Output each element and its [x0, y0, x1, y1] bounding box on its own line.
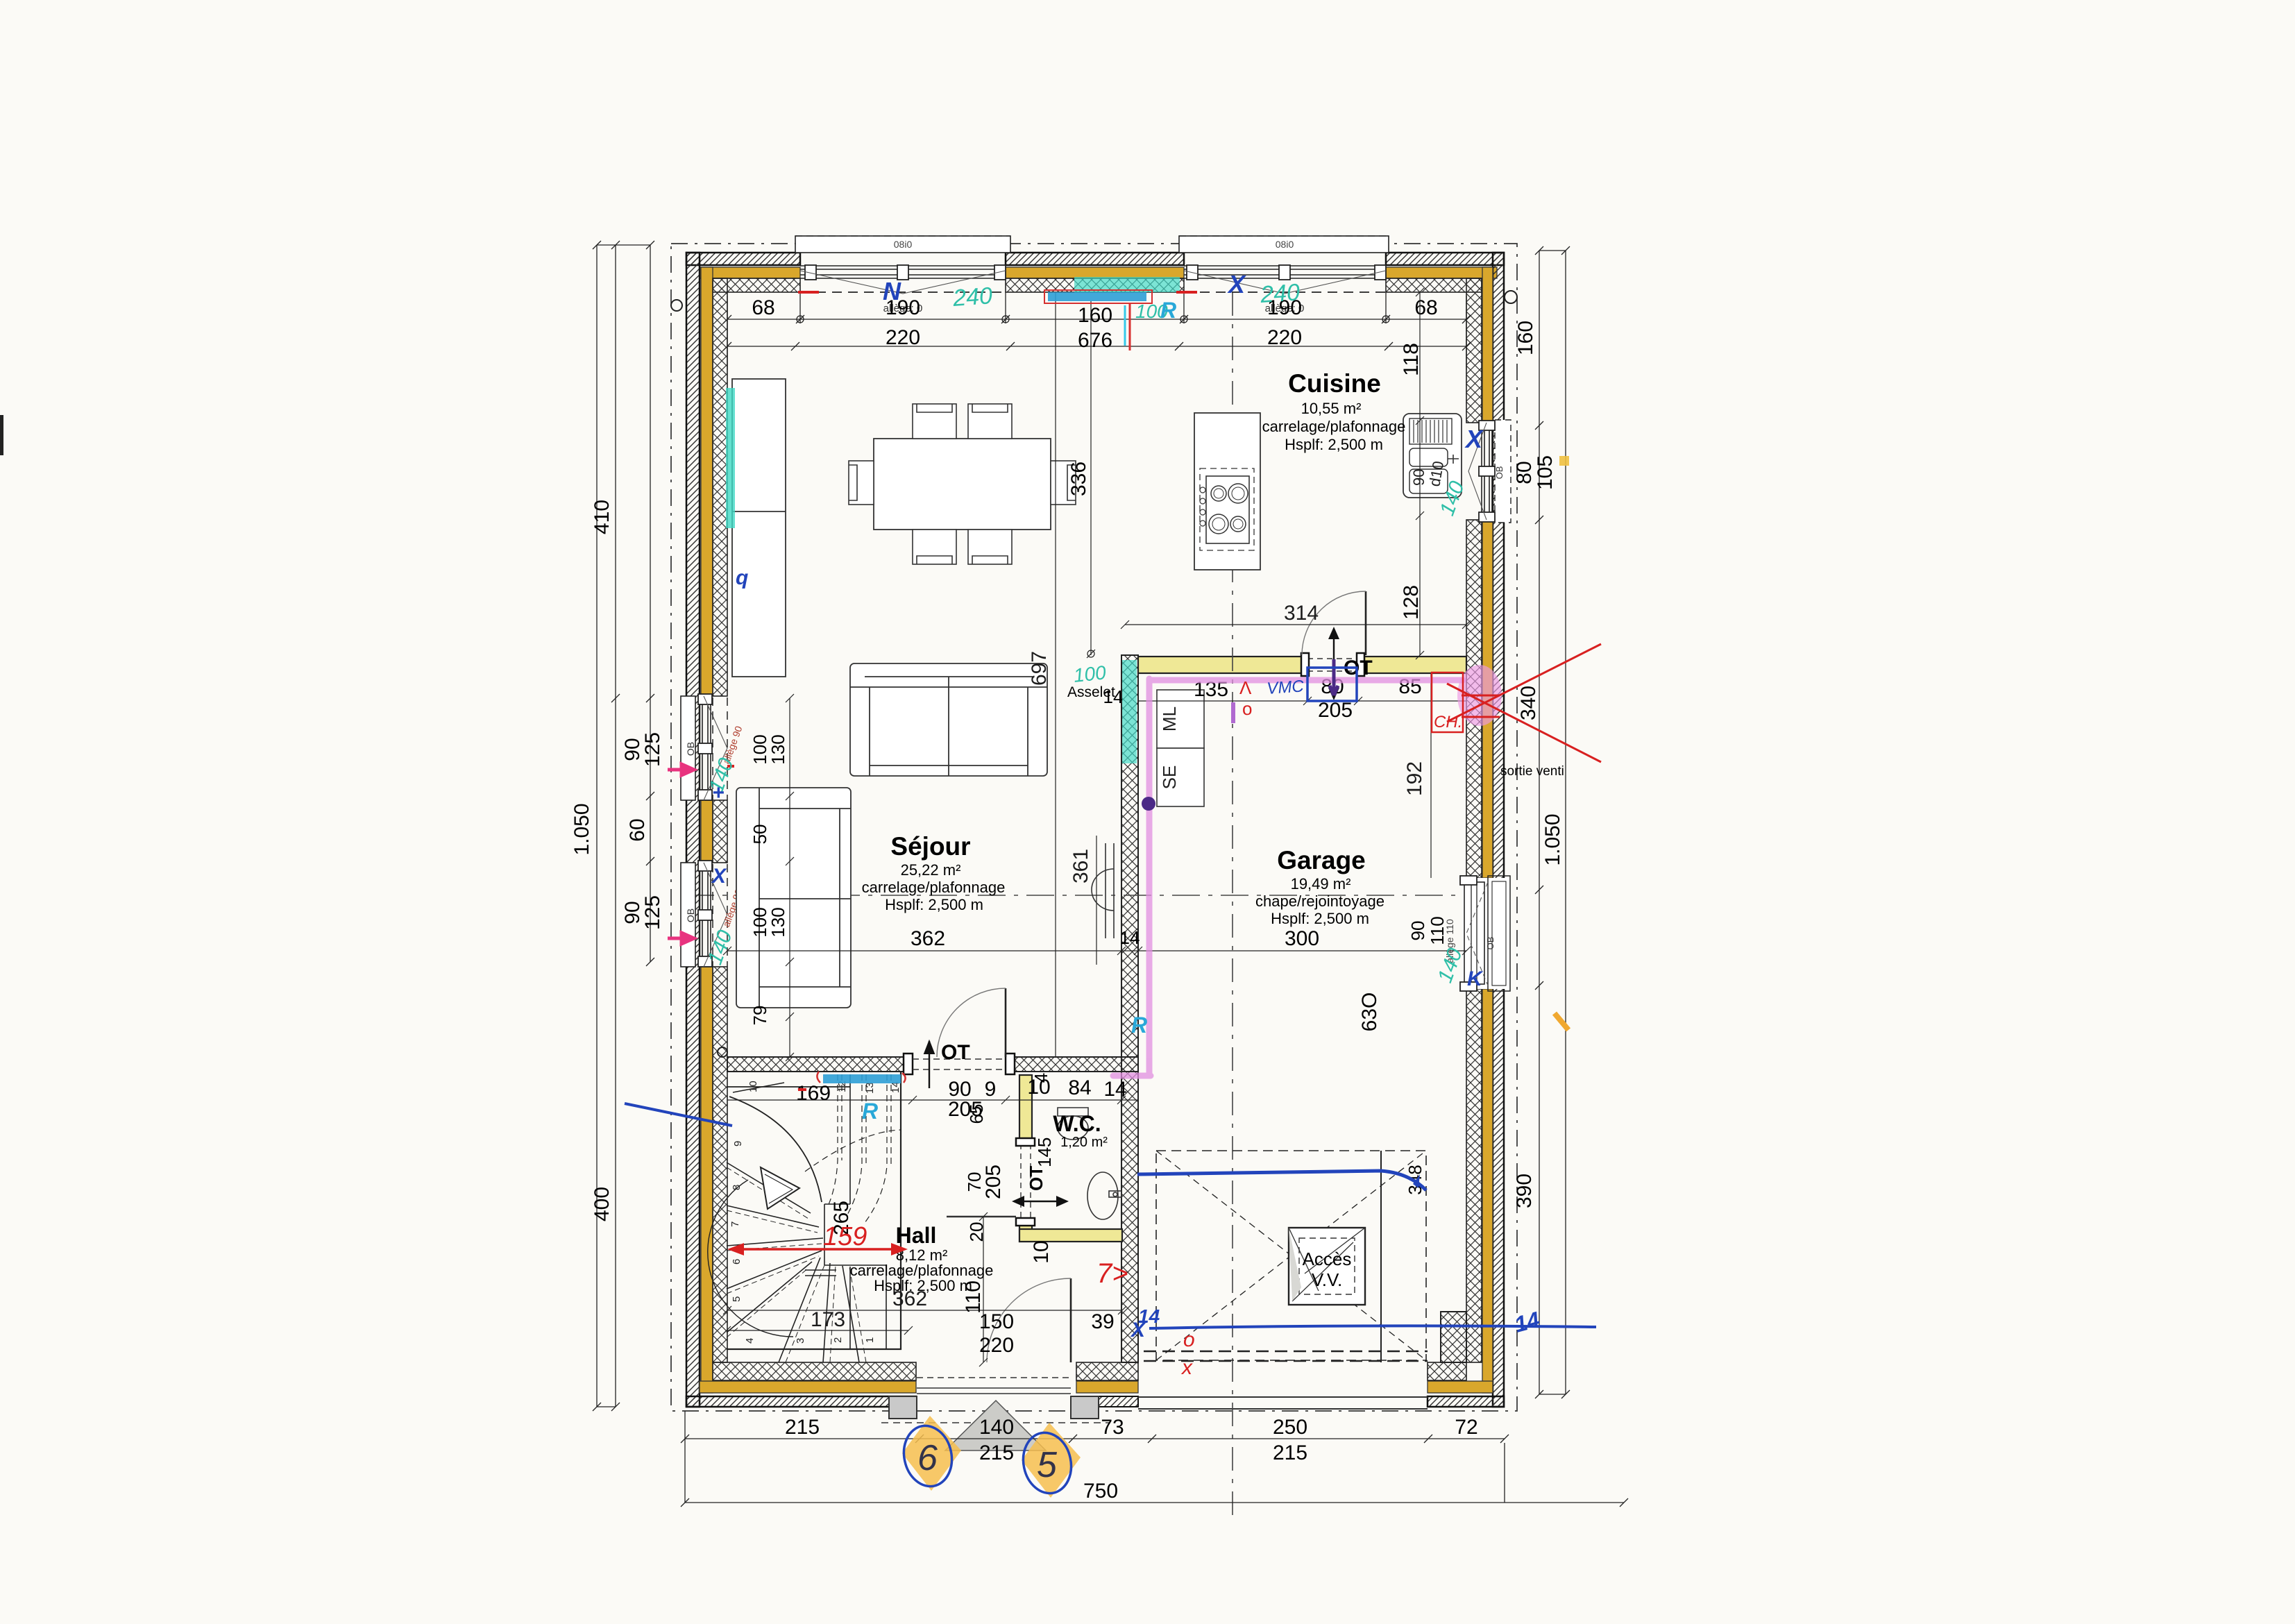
svg-text:N: N — [883, 277, 901, 305]
svg-text:6: 6 — [917, 1438, 938, 1478]
svg-text:145: 145 — [1034, 1137, 1055, 1167]
svg-text:50: 50 — [750, 824, 770, 845]
svg-text:4: 4 — [1031, 1073, 1051, 1083]
svg-text:173: 173 — [811, 1308, 845, 1331]
svg-text:K: K — [1467, 967, 1484, 990]
svg-text:220: 220 — [1267, 326, 1302, 349]
svg-text:13: 13 — [864, 1082, 876, 1094]
svg-text:Hsplf: 2,500 m: Hsplf: 2,500 m — [1285, 436, 1383, 453]
svg-text:9: 9 — [985, 1078, 997, 1101]
svg-text:Hsplf: 2,500 m: Hsplf: 2,500 m — [874, 1277, 972, 1294]
svg-text:68: 68 — [1414, 296, 1437, 319]
svg-text:Hall: Hall — [896, 1223, 937, 1248]
svg-text:215: 215 — [785, 1416, 820, 1439]
svg-text:OT: OT — [1026, 1166, 1047, 1191]
svg-text:697: 697 — [1028, 651, 1051, 686]
svg-text:Garage: Garage — [1277, 846, 1366, 874]
svg-text:chape/rejointoyage: chape/rejointoyage — [1255, 893, 1384, 910]
svg-text:X: X — [1227, 270, 1246, 298]
svg-text:W.C.: W.C. — [1053, 1111, 1101, 1136]
svg-text:R: R — [1131, 1013, 1147, 1038]
svg-text:10: 10 — [747, 1081, 759, 1092]
svg-text:410: 410 — [591, 500, 613, 534]
svg-text:100: 100 — [1072, 661, 1107, 686]
svg-text:14: 14 — [1120, 927, 1140, 948]
svg-text:362: 362 — [911, 927, 945, 950]
svg-text:60: 60 — [626, 818, 649, 841]
svg-text:V.V.: V.V. — [1312, 1269, 1342, 1290]
svg-text:carrelage/plafonnage: carrelage/plafonnage — [1262, 418, 1406, 435]
svg-text:sortie venti: sortie venti — [1500, 764, 1564, 779]
svg-text:750: 750 — [1083, 1480, 1118, 1503]
svg-text:130: 130 — [768, 907, 788, 937]
svg-text:5: 5 — [1037, 1445, 1058, 1485]
svg-text:390: 390 — [1513, 1174, 1536, 1208]
svg-text:400: 400 — [591, 1187, 613, 1221]
svg-text:110: 110 — [1427, 916, 1448, 945]
svg-text:R: R — [1160, 298, 1176, 323]
svg-text:10,55 m²: 10,55 m² — [1301, 400, 1362, 417]
svg-text:314: 314 — [1284, 602, 1319, 625]
svg-text:39: 39 — [1091, 1310, 1114, 1333]
svg-text:150: 150 — [979, 1310, 1014, 1333]
svg-text:63O: 63O — [1358, 992, 1381, 1032]
svg-text:215: 215 — [979, 1441, 1014, 1464]
svg-text:140: 140 — [979, 1416, 1014, 1439]
svg-text:14: 14 — [1138, 1305, 1160, 1327]
svg-text:128: 128 — [1400, 585, 1423, 620]
svg-text:o: o — [1242, 698, 1252, 719]
svg-text:1: 1 — [864, 1337, 876, 1343]
svg-text:159: 159 — [823, 1222, 867, 1251]
svg-text:79: 79 — [750, 1006, 770, 1026]
svg-text:OB: OB — [1494, 466, 1505, 480]
svg-text:336: 336 — [1067, 462, 1090, 496]
svg-text:215: 215 — [1273, 1441, 1307, 1464]
svg-text:220: 220 — [886, 326, 920, 349]
svg-text:OB: OB — [685, 908, 696, 922]
svg-text:8: 8 — [731, 1185, 743, 1190]
svg-text:R: R — [862, 1099, 878, 1124]
svg-text:68: 68 — [752, 296, 774, 319]
svg-text:84: 84 — [1068, 1076, 1091, 1099]
svg-text:OB: OB — [685, 742, 696, 756]
svg-text:OB: OB — [1485, 937, 1496, 950]
svg-text:x: x — [1180, 1356, 1193, 1379]
svg-text:340: 340 — [1517, 686, 1540, 720]
svg-text:X: X — [1464, 425, 1484, 453]
svg-text:carrelage/plafonnage: carrelage/plafonnage — [862, 879, 1006, 896]
svg-text:4: 4 — [744, 1338, 756, 1344]
svg-text:Hsplf: 2,500 m: Hsplf: 2,500 m — [885, 896, 983, 913]
svg-text:169: 169 — [796, 1082, 831, 1105]
svg-text:Cuisine: Cuisine — [1288, 369, 1381, 398]
svg-text:o: o — [1183, 1328, 1195, 1351]
svg-text:SE: SE — [1159, 766, 1180, 790]
svg-text:Accès: Accès — [1303, 1249, 1352, 1269]
svg-text:Λ: Λ — [1239, 677, 1252, 698]
svg-text:240: 240 — [951, 282, 993, 312]
svg-text:90: 90 — [1410, 469, 1428, 486]
svg-text:80: 80 — [1513, 461, 1536, 484]
svg-text:X: X — [711, 865, 727, 888]
svg-text:73: 73 — [1101, 1416, 1124, 1439]
svg-text:1.050: 1.050 — [570, 803, 593, 855]
svg-text:2: 2 — [832, 1337, 844, 1343]
svg-text:VMC: VMC — [1267, 677, 1305, 698]
svg-text:3: 3 — [795, 1338, 806, 1344]
svg-text:300: 300 — [1285, 927, 1319, 950]
svg-text:90: 90 — [1407, 921, 1428, 941]
svg-text:250: 250 — [1273, 1416, 1307, 1439]
svg-text:Hsplf: 2,500 m: Hsplf: 2,500 m — [1271, 910, 1369, 927]
svg-text:20: 20 — [966, 1222, 987, 1242]
svg-text:205: 205 — [982, 1165, 1005, 1199]
svg-text:105: 105 — [1534, 455, 1557, 490]
svg-text:130: 130 — [768, 734, 788, 764]
svg-text:361: 361 — [1069, 849, 1092, 883]
svg-text:220: 220 — [979, 1334, 1014, 1357]
svg-text:25,22 m²: 25,22 m² — [901, 861, 961, 879]
svg-text:19,49 m²: 19,49 m² — [1291, 875, 1351, 893]
svg-text:08i0: 08i0 — [1276, 239, 1294, 250]
svg-text:72: 72 — [1455, 1416, 1477, 1439]
svg-text:5: 5 — [731, 1296, 743, 1302]
svg-text:192: 192 — [1403, 761, 1426, 796]
svg-text:q: q — [736, 566, 748, 589]
svg-text:08i0: 08i0 — [894, 239, 913, 250]
svg-text:1.050: 1.050 — [1541, 813, 1564, 865]
svg-text:9: 9 — [732, 1141, 744, 1147]
svg-text:1,20 m²: 1,20 m² — [1060, 1135, 1108, 1150]
svg-text:125: 125 — [641, 895, 664, 930]
svg-text:240: 240 — [1259, 279, 1301, 308]
svg-text:14: 14 — [1103, 1078, 1126, 1101]
svg-text:125: 125 — [641, 732, 664, 767]
svg-text:Séjour: Séjour — [890, 832, 970, 861]
svg-text:160: 160 — [1514, 321, 1537, 355]
svg-text:Asselet: Asselet — [1067, 684, 1115, 700]
svg-text:6: 6 — [731, 1259, 743, 1264]
svg-text:65: 65 — [966, 1104, 987, 1124]
svg-text:ML: ML — [1159, 707, 1180, 731]
svg-text:160: 160 — [1078, 304, 1112, 327]
svg-text:OT: OT — [941, 1041, 970, 1064]
svg-text:7>: 7> — [1096, 1258, 1128, 1289]
svg-text:205: 205 — [1318, 699, 1353, 722]
svg-text:118: 118 — [1400, 343, 1423, 376]
svg-text:676: 676 — [1078, 329, 1112, 352]
svg-text:10: 10 — [1030, 1240, 1053, 1263]
svg-text:7: 7 — [729, 1221, 741, 1227]
svg-text:+: + — [712, 781, 725, 804]
